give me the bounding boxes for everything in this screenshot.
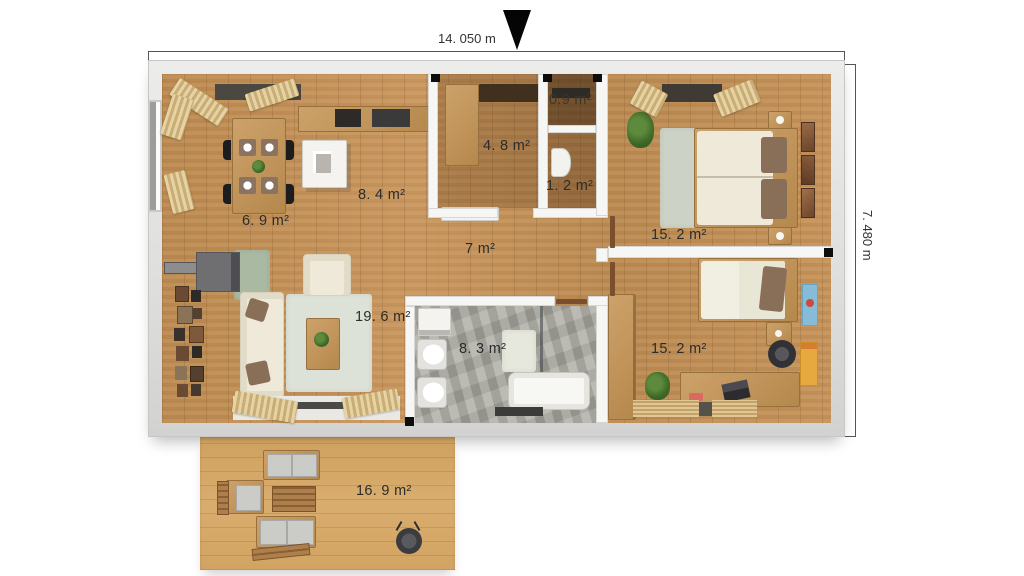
kitchen-appliance xyxy=(372,109,410,127)
window-blinds-gap xyxy=(699,402,712,416)
wall-art-frame xyxy=(801,188,815,218)
hall-closet xyxy=(445,84,479,166)
bedroom-top-door xyxy=(610,216,615,248)
wall-art-frame xyxy=(801,122,815,152)
nightstand-1 xyxy=(768,111,792,129)
outdoor-cushion xyxy=(267,454,292,477)
bath-mat xyxy=(502,330,536,372)
grill-table xyxy=(396,528,422,554)
outdoor-sofa-1 xyxy=(263,450,320,480)
wall-storage-wc-divider xyxy=(548,125,596,133)
single-bed-frame xyxy=(698,258,798,322)
dining-plant xyxy=(252,160,265,173)
room-label-kitchen: 8. 4 m² xyxy=(358,187,405,203)
outdoor-cushion xyxy=(292,454,317,477)
bathtub xyxy=(508,372,590,410)
outdoor-cushion xyxy=(260,520,287,545)
dining-table xyxy=(232,118,286,214)
wall-art-frame xyxy=(801,155,815,185)
picture-frame xyxy=(177,306,193,324)
sink-2 xyxy=(417,377,447,408)
lamp xyxy=(776,116,784,124)
wall-main-vertical-b xyxy=(596,248,608,262)
poster-blue xyxy=(802,284,818,326)
picture-frame xyxy=(191,290,201,302)
right-dimension-line xyxy=(855,64,856,437)
lamp xyxy=(776,232,784,240)
window-left xyxy=(148,100,162,212)
shower-glass xyxy=(540,306,543,372)
outdoor-table xyxy=(272,486,316,512)
outdoor-chair xyxy=(226,480,264,514)
bedroom-top-plant xyxy=(627,112,654,148)
wall-main-vertical-a xyxy=(596,74,608,216)
top-dimension-tick-left xyxy=(148,51,149,60)
wall-bathroom-top-left xyxy=(405,296,555,306)
duvet-seam xyxy=(697,176,773,178)
bedroom-bottom-door xyxy=(610,262,615,296)
wall-marker xyxy=(593,74,602,82)
room-label-entry-hall: 4. 8 m² xyxy=(483,138,530,154)
top-dimension-line xyxy=(148,51,845,52)
room-label-terrace: 16. 9 m² xyxy=(356,483,412,499)
right-dimension-tick-bottom xyxy=(845,436,856,437)
wall-marker xyxy=(824,248,833,257)
gallery-wall xyxy=(173,286,209,402)
wall-bedroom-divider xyxy=(608,246,831,258)
bathroom-door xyxy=(556,299,587,304)
right-dimension-label: 7. 480 m xyxy=(860,210,875,261)
dining-chair xyxy=(286,184,294,204)
outdoor-cushion xyxy=(287,520,314,545)
picture-frame xyxy=(192,346,202,358)
wall-hall-right xyxy=(538,74,548,216)
kitchen-counter xyxy=(298,106,432,132)
double-bed-frame xyxy=(694,128,798,228)
floor-plan-canvas: 14. 050 m 7. 480 m xyxy=(0,0,1024,576)
single-bed-pillow xyxy=(759,266,787,312)
wall-hall-bottom-left xyxy=(428,208,498,218)
window-blinds-right xyxy=(712,400,757,417)
wall-marker xyxy=(431,74,440,82)
wardrobe xyxy=(608,294,636,420)
room-label-bedroom-bottom: 15. 2 m² xyxy=(651,341,707,357)
room-label-corridor: 7 m² xyxy=(465,241,495,257)
room-label-wc: 1. 2 m² xyxy=(546,178,593,194)
picture-frame xyxy=(177,384,188,397)
knob xyxy=(775,330,782,337)
island-shelf xyxy=(313,151,331,173)
placemat xyxy=(239,139,256,156)
dining-chair xyxy=(286,140,294,160)
desk-chair xyxy=(768,340,796,368)
right-dimension-tick-top xyxy=(845,64,856,65)
window-bedroom-top xyxy=(662,84,722,102)
dining-chair xyxy=(223,140,231,160)
room-label-living: 19. 6 m² xyxy=(355,309,411,325)
picture-frame xyxy=(174,328,185,341)
sofa-pillow-2 xyxy=(245,360,271,386)
picture-frame xyxy=(176,346,189,361)
picture-frame xyxy=(190,366,204,382)
washing-machine xyxy=(418,308,451,336)
picture-frame xyxy=(175,286,189,302)
chair-slat-back xyxy=(217,481,229,515)
stove-cooktop xyxy=(335,109,361,127)
picture-frame xyxy=(189,326,204,343)
armchair xyxy=(303,254,351,296)
wc-toilet xyxy=(551,148,571,177)
kitchen-island xyxy=(302,140,347,188)
top-dimension-tick-right xyxy=(844,51,845,60)
poster-blue-dot xyxy=(806,299,814,307)
sink-1 xyxy=(417,339,447,370)
room-label-dining: 6. 9 m² xyxy=(242,213,289,229)
picture-frame xyxy=(193,308,202,319)
shower-mat xyxy=(495,407,543,416)
wall-hall-left xyxy=(428,74,438,216)
room-label-bathroom: 8. 3 m² xyxy=(459,341,506,357)
window-blinds-left xyxy=(633,400,699,417)
wall-bathroom-top-right xyxy=(588,296,608,306)
dining-chair xyxy=(223,184,231,204)
placemat xyxy=(239,177,256,194)
wall-main-vertical-c xyxy=(596,296,608,423)
room-label-bedroom-top: 15. 2 m² xyxy=(651,227,707,243)
bed-pillow-1 xyxy=(761,137,787,173)
wall-marker xyxy=(405,417,414,426)
placemat xyxy=(261,177,278,194)
room-label-storage: 0.9 m² xyxy=(549,92,592,108)
bed-pillow-2 xyxy=(761,179,787,219)
north-arrow-icon xyxy=(503,10,531,50)
wall-marker xyxy=(543,74,552,82)
placemat xyxy=(261,139,278,156)
bedroom-bottom-plant xyxy=(645,372,670,400)
picture-frame xyxy=(175,366,187,380)
picture-frame xyxy=(191,384,201,396)
nightstand-2 xyxy=(768,227,792,245)
poster-yellow xyxy=(800,342,818,386)
entrance-door xyxy=(479,84,541,102)
top-dimension-label: 14. 050 m xyxy=(438,31,496,46)
coffee-table-plant xyxy=(314,332,329,347)
outdoor-cushion xyxy=(236,485,261,511)
